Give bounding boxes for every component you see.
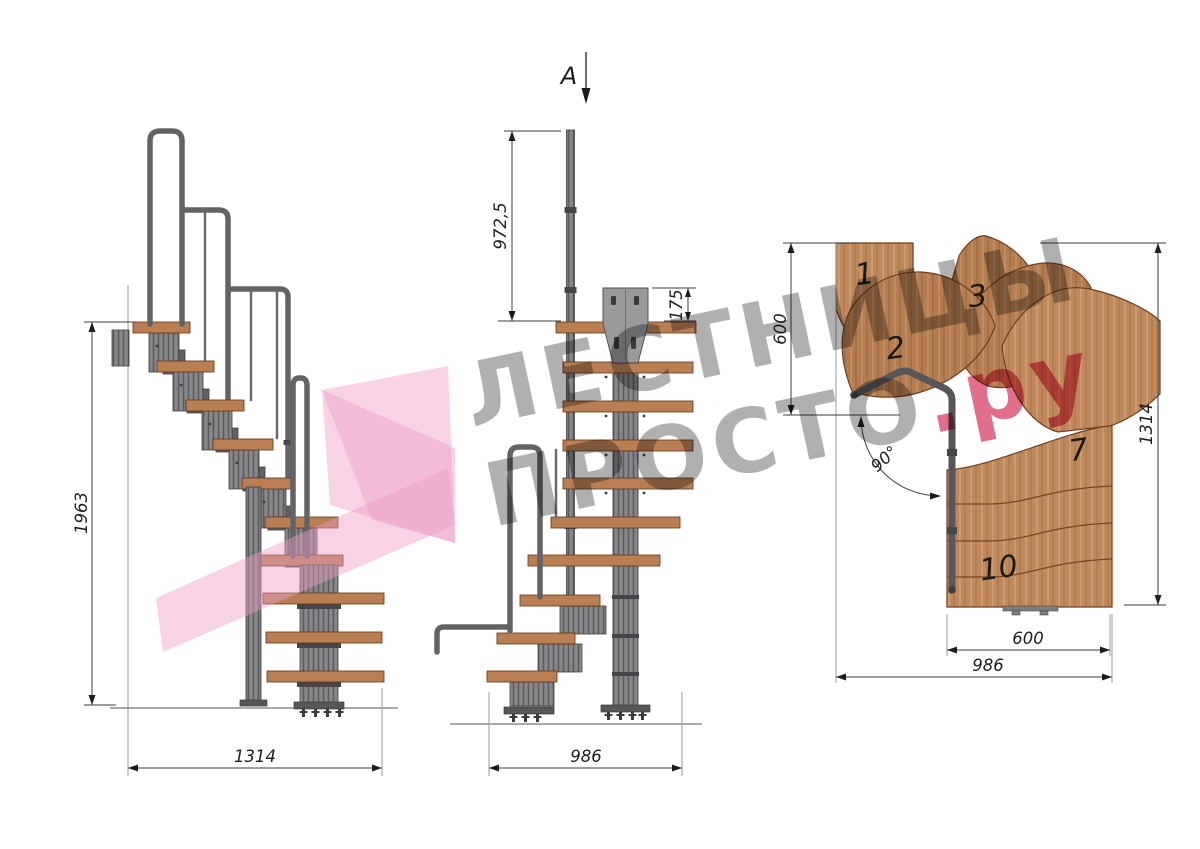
- dim-total-height: 1963: [72, 492, 91, 534]
- mounting-plate: [603, 288, 648, 363]
- tread: [563, 440, 693, 451]
- tread: [528, 555, 660, 566]
- dim-total-length: 1314: [234, 747, 276, 766]
- tread: [487, 671, 557, 682]
- wall-bracket: [112, 330, 129, 366]
- tread: [267, 671, 384, 682]
- step-module: [538, 644, 582, 672]
- dim-bracket-height: 175: [667, 289, 686, 321]
- step-module: [560, 606, 606, 634]
- tread: [563, 401, 693, 412]
- dim-flight-width: 600: [1012, 629, 1044, 648]
- plan-bracket: [1003, 606, 1058, 611]
- step-number-10: 10: [977, 549, 1020, 589]
- handrail-end-cap: [850, 391, 858, 399]
- tread: [213, 439, 273, 450]
- dim-front-width: 986: [570, 747, 602, 766]
- step-module: [510, 682, 554, 706]
- tread: [520, 595, 600, 606]
- center-pole: [613, 320, 638, 706]
- tread: [186, 400, 244, 411]
- handrail-segment: [437, 627, 507, 652]
- tread: [497, 633, 575, 644]
- dim-total-depth: 1314: [1137, 403, 1156, 445]
- tread: [157, 361, 214, 372]
- base-plate: [504, 707, 554, 714]
- section-cut-label: A: [559, 62, 577, 90]
- section-cut-marker: A: [559, 52, 591, 104]
- dim-handrail-height: 972,5: [491, 202, 510, 249]
- tread: [266, 632, 382, 643]
- dim-plan-width: 986: [972, 656, 1004, 675]
- staircase-technical-drawing: 1963 1314 A: [0, 0, 1200, 849]
- dim-turn-angle: 90°: [867, 442, 901, 476]
- plan-handrail: [854, 371, 952, 590]
- dim-landing-depth: 600: [771, 313, 790, 345]
- tread: [563, 362, 693, 373]
- base-plate: [601, 705, 650, 712]
- anchor-bolts: [300, 709, 344, 717]
- front-view: A: [437, 52, 702, 776]
- base-plate: [240, 700, 267, 706]
- handrail-end-cap: [948, 586, 956, 594]
- drawing-canvas: 1963 1314 A: [0, 0, 1200, 849]
- tread: [563, 478, 693, 489]
- section-arrow-icon: [582, 88, 591, 104]
- plan-view: 1 2 3 7 10 600 1314 600: [771, 236, 1166, 683]
- tread: [551, 517, 680, 528]
- handrail-loop: [150, 131, 182, 324]
